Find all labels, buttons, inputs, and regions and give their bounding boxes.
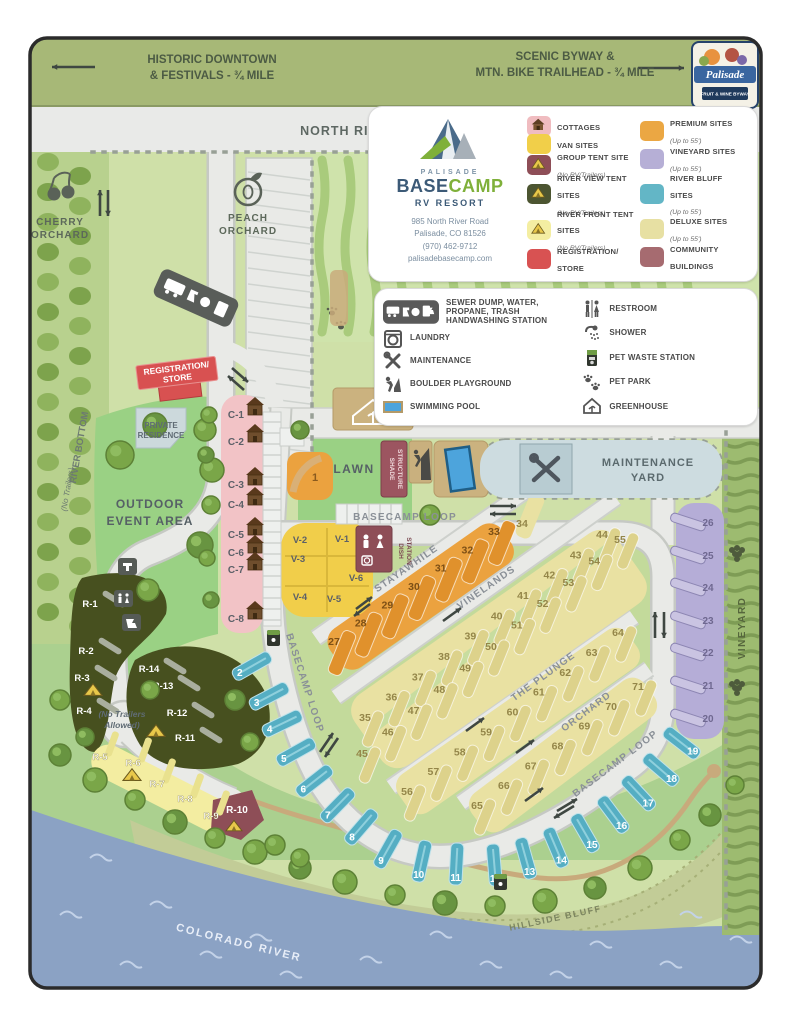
legend-amenity-item: SHOWER [582, 324, 747, 344]
tree [50, 690, 70, 710]
pet-waste-icon [582, 348, 602, 368]
tree [699, 804, 721, 826]
tree [49, 744, 71, 766]
site-V-4: V-4 [293, 592, 308, 603]
legend-swatch [527, 116, 551, 136]
cabin-door [253, 436, 257, 442]
tent-icon [530, 186, 548, 202]
tree-highlight [87, 772, 97, 782]
tree [333, 870, 357, 894]
tree-highlight [632, 860, 642, 870]
tree-highlight [673, 833, 681, 841]
legend-item: COMMUNITY BUILDINGS [640, 243, 747, 271]
legend-swatch [527, 220, 551, 240]
site-C-4: C-4 [228, 500, 245, 511]
site-4: 4 [267, 725, 273, 736]
brand-name: BASECAMP [379, 176, 521, 197]
bush [37, 453, 59, 471]
site-1: 1 [312, 472, 318, 484]
tree-highlight [337, 874, 347, 884]
site-27: 27 [328, 636, 340, 648]
legend-amenity-item: BOULDER PLAYGROUND [383, 374, 572, 394]
tree-highlight [79, 731, 86, 738]
site-C-7: C-7 [228, 565, 245, 576]
dump-station-icons [383, 300, 439, 324]
brand-palisade: PALISADE [379, 169, 521, 176]
site-R-2: R-2 [78, 646, 93, 657]
water-spigot-icon [118, 558, 137, 575]
site-V-3: V-3 [291, 554, 305, 565]
bush [69, 527, 91, 545]
site-R-9: R-9 [203, 811, 218, 822]
tree-highlight [228, 693, 236, 701]
banner-left-line1: HISTORIC DOWNTOWN [147, 54, 276, 66]
site-43: 43 [570, 549, 582, 561]
site-23: 23 [702, 616, 714, 627]
basecamp-logo-icon [418, 117, 482, 163]
handwash-icon-map [122, 614, 141, 631]
grape [734, 690, 740, 696]
restroom-icon [582, 299, 602, 319]
site-3: 3 [254, 698, 260, 709]
bush [37, 603, 59, 621]
event-area-label1: OUTDOOR [116, 497, 184, 511]
tree-highlight [244, 736, 251, 743]
site-41: 41 [517, 590, 529, 602]
bush [69, 377, 91, 395]
site-15: 15 [586, 840, 598, 851]
site-34: 34 [516, 518, 528, 530]
tree-highlight [488, 899, 496, 907]
bush [69, 257, 91, 275]
site-V-6: V-6 [349, 573, 363, 584]
legend-swatch [527, 155, 551, 175]
site-21: 21 [702, 681, 714, 692]
site-17: 17 [643, 798, 655, 809]
tree [205, 828, 225, 848]
vineyard-label: VINEYARD [737, 597, 748, 660]
website: palisadebasecamp.com [379, 253, 521, 265]
tree [628, 856, 652, 880]
site-19: 19 [687, 747, 699, 758]
bush [69, 347, 91, 365]
banner-left-line2: & FESTIVALS - ¾ MILE [150, 70, 275, 82]
tree-highlight [200, 449, 206, 455]
tree-highlight [205, 594, 211, 600]
site-R-1: R-1 [82, 599, 98, 610]
legend-amenity-item: PET WASTE STATION [582, 348, 747, 368]
tree-highlight [191, 536, 201, 546]
site-C-2: C-2 [228, 437, 245, 448]
tree-highlight [587, 880, 596, 889]
legend-item-label: PREMIUM SITES [670, 119, 733, 128]
legend-amenity-label: PET WASTE STATION [609, 354, 695, 363]
swimming-pool [445, 447, 475, 492]
legend-swatch [640, 121, 664, 141]
site-C-6: C-6 [228, 548, 245, 559]
site-59: 59 [480, 726, 492, 738]
legend-amenities-panel: SEWER DUMP, WATER, PROPANE, TRASH HANDWA… [374, 288, 758, 426]
tree [198, 447, 214, 463]
legend-amenity-icon [582, 397, 602, 417]
site-65: 65 [471, 800, 483, 812]
tree-highlight [208, 831, 216, 839]
bush [37, 303, 59, 321]
site-22: 22 [702, 648, 714, 659]
tree [241, 733, 259, 751]
site-64: 64 [612, 627, 624, 639]
site-R-7: R-7 [149, 779, 164, 790]
tree-highlight [52, 747, 61, 756]
tree [533, 889, 557, 913]
event-area-label2: EVENT AREA [107, 514, 194, 528]
badge-sub: FRUIT & WINE BYWAY [700, 92, 749, 97]
dish-station-building [356, 526, 392, 572]
site-46: 46 [382, 727, 394, 739]
legend-swatch [640, 247, 664, 267]
tree-highlight [437, 895, 447, 905]
bush [37, 423, 59, 441]
tent-icon [530, 222, 548, 238]
cherry-orchard-label1: CHERRY [36, 217, 84, 228]
legend-item: RIVER BLUFF SITES (Up to 55') [640, 173, 747, 215]
site-44: 44 [596, 529, 608, 541]
site-V-1: V-1 [335, 534, 350, 545]
tree-highlight [53, 693, 61, 701]
bush [69, 167, 91, 185]
no-trailers-allowed2: Allowed) [103, 720, 140, 730]
no-trailers-allowed1: (No Trailers [98, 709, 145, 719]
site-39: 39 [464, 631, 476, 643]
tree-highlight [140, 582, 149, 591]
phone: (970) 462-9712 [379, 241, 521, 253]
tree [125, 790, 145, 810]
legend-item: COTTAGES [527, 117, 634, 135]
site-45: 45 [356, 748, 368, 760]
grape [734, 556, 740, 562]
bush [37, 363, 59, 381]
premium-site-1 [287, 452, 333, 500]
site-49: 49 [459, 662, 471, 674]
dish-station-label2: STATION [405, 537, 412, 565]
site-18: 18 [666, 774, 678, 785]
swimming-pool-icon [383, 397, 403, 417]
bush [37, 333, 59, 351]
site-58: 58 [454, 746, 466, 758]
tree [141, 681, 159, 699]
legend-amenity-icon [383, 329, 403, 349]
private-residence-label1: PRIVATE [144, 421, 178, 430]
tree [385, 885, 405, 905]
tree-highlight [268, 838, 276, 846]
legend-amenity-label: SHOWER [609, 329, 646, 338]
legend-amenity-label: LAUNDRY [410, 334, 450, 343]
cabin-door [253, 564, 257, 570]
legend-swatch [640, 184, 664, 204]
cabin-door [253, 613, 257, 619]
trail-end [707, 764, 721, 778]
banner-right-line1: SCENIC BYWAY & [515, 51, 614, 63]
tree [291, 421, 309, 439]
address-line1: 985 North River Road [379, 216, 521, 228]
cabin-door [253, 499, 257, 505]
shower-icon [582, 324, 602, 344]
cabin-icon [530, 118, 548, 134]
tree [670, 830, 690, 850]
legend-amenity-label: RESTROOM [609, 305, 657, 314]
tree [726, 776, 744, 794]
site-55: 55 [614, 534, 626, 546]
legend-amenity-item: LAUNDRY [383, 329, 572, 349]
address-line2: Palisade, CO 81526 [379, 228, 521, 240]
legend-amenity-item: SEWER DUMP, WATER, PROPANE, TRASH HANDWA… [383, 299, 572, 326]
tree-highlight [205, 499, 212, 506]
bush [69, 317, 91, 335]
site-C-1: C-1 [228, 410, 245, 421]
cabin-door [253, 409, 257, 415]
bush [37, 573, 59, 591]
tree-highlight [144, 684, 151, 691]
site-51: 51 [511, 620, 523, 632]
tree [83, 768, 107, 792]
site-R-4: R-4 [76, 706, 92, 717]
legend-swatch [640, 219, 664, 239]
site-33: 33 [488, 526, 500, 538]
site-71: 71 [632, 681, 644, 693]
legend-swatch [527, 184, 551, 204]
tree [76, 728, 94, 746]
cherry-orchard-label2: ORCHARD [31, 230, 89, 241]
bush [37, 153, 59, 171]
shade-label1: SHADE [388, 458, 395, 481]
site-26: 26 [702, 518, 714, 529]
dish-station-label1: DISH [397, 543, 404, 559]
site-30: 30 [408, 581, 420, 593]
tree-highlight [197, 422, 206, 431]
tree-highlight [388, 888, 396, 896]
brand-base: BASE [396, 176, 448, 196]
shade-label2: STRUCTURE [396, 449, 403, 490]
tree [202, 496, 220, 514]
tree [201, 407, 217, 423]
pet-waste-icon-map2 [494, 874, 507, 890]
legend-amenity-label: MAINTENANCE [410, 357, 471, 366]
peach-orchard-label2: ORCHARD [219, 226, 277, 237]
legend-swatch [527, 134, 551, 154]
bush [37, 543, 59, 561]
site-38: 38 [438, 651, 450, 663]
legend-item-label: RIVER BLUFF SITES [670, 174, 722, 200]
site-14: 14 [556, 856, 568, 867]
site-5: 5 [281, 754, 287, 765]
site-50: 50 [485, 641, 497, 653]
tree [584, 877, 606, 899]
site-42: 42 [543, 570, 555, 582]
site-R-6: R-6 [125, 758, 140, 769]
pet-park-path [330, 270, 348, 326]
greenhouse-icon [582, 397, 602, 417]
legend-item-label: COMMUNITY BUILDINGS [670, 245, 719, 271]
site-37: 37 [412, 671, 424, 683]
site-67: 67 [525, 760, 537, 772]
tree-highlight [167, 814, 177, 824]
site-20: 20 [702, 714, 714, 725]
legend-item-label: RIVER FRONT TENT SITES [557, 210, 634, 236]
legend-amenity-label: SEWER DUMP, WATER, PROPANE, TRASH HANDWA… [446, 299, 572, 326]
tent-icon [530, 157, 548, 173]
legend-item-label: COTTAGES [557, 123, 600, 132]
legend-amenity-icon [582, 299, 602, 319]
tree-highlight [110, 445, 121, 456]
legend-item: PREMIUM SITES (Up to 55') [640, 117, 747, 145]
site-40: 40 [491, 610, 503, 622]
basecamp-loop-top-label: BASECAMP LOOP [353, 512, 457, 523]
legend-amenity-item: GREENHOUSE [582, 397, 747, 417]
site-C-8: C-8 [228, 614, 245, 625]
legend-swatch [527, 249, 551, 269]
laundry-icon [383, 329, 403, 349]
site-R-12: R-12 [167, 708, 188, 719]
legend-amenities-right-column: RESTROOM SHOWER PET WASTE STATION PET PA… [582, 297, 747, 419]
legend-item-label: DELUXE SITES [670, 217, 727, 226]
legend-item-label: GROUP TENT SITE [557, 153, 629, 162]
maintenance-label1: MAINTENANCE [602, 457, 694, 469]
tree-highlight [702, 807, 711, 816]
legend-sites-panel: PALISADE BASECAMP RV RESORT 985 North Ri… [368, 106, 758, 282]
tree [106, 441, 134, 469]
peach-orchard-label1: PEACH [228, 213, 268, 224]
tree-highlight [128, 793, 136, 801]
legend-amenity-icon [582, 348, 602, 368]
site-7: 7 [325, 810, 331, 821]
site-9: 9 [378, 856, 384, 867]
site-57: 57 [428, 766, 440, 778]
tree-highlight [201, 552, 207, 558]
legend-swatch [640, 149, 664, 169]
tree [265, 835, 285, 855]
bush [69, 197, 91, 215]
site-56: 56 [401, 786, 413, 798]
legend-amenity-item: RESTROOM [582, 299, 747, 319]
banner-right-line2: MTN. BIKE TRAILHEAD - ¾ MILE [476, 67, 655, 79]
boulder-playground-icon [383, 374, 403, 394]
legend-amenity-icon [383, 397, 403, 417]
palisade-byway-badge: Palisade FRUIT & WINE BYWAY [692, 42, 758, 108]
legend-amenity-item: MAINTENANCE [383, 351, 572, 371]
bush [37, 243, 59, 261]
site-2: 2 [237, 668, 243, 679]
site-C-3: C-3 [228, 480, 245, 491]
maintenance-yard [480, 440, 722, 498]
site-V-2: V-2 [293, 535, 307, 546]
legend-amenity-label: SWIMMING POOL [410, 403, 480, 412]
site-28: 28 [355, 618, 367, 630]
bush [37, 483, 59, 501]
site-48: 48 [434, 684, 446, 696]
tree [291, 849, 309, 867]
site-R-10: R-10 [226, 805, 248, 816]
tree [199, 550, 215, 566]
site-13: 13 [524, 867, 536, 878]
site-R-11: R-11 [175, 733, 196, 744]
tree-highlight [729, 779, 736, 786]
brand-sub: RV RESORT [379, 198, 521, 208]
tree [203, 592, 219, 608]
site-52: 52 [537, 598, 549, 610]
bush [37, 273, 59, 291]
legend-amenities-left-column: SEWER DUMP, WATER, PROPANE, TRASH HANDWA… [383, 297, 572, 419]
site-6: 6 [300, 785, 306, 796]
legend-amenity-item: PET PARK [582, 373, 747, 393]
site-36: 36 [385, 692, 397, 704]
site-C-5: C-5 [228, 530, 245, 541]
pet-waste-icon-map [267, 630, 280, 646]
tree [433, 891, 457, 915]
bush [69, 557, 91, 575]
legend-amenity-label: BOULDER PLAYGROUND [410, 380, 512, 389]
bush [69, 287, 91, 305]
site-31: 31 [435, 563, 447, 575]
site-R-8: R-8 [177, 794, 192, 805]
legend-amenity-label: PET PARK [609, 378, 650, 387]
legend-item-label: RIVER VIEW TENT SITES [557, 174, 627, 200]
cabin-door [253, 479, 257, 485]
resort-brand: PALISADE BASECAMP RV RESORT 985 North Ri… [379, 115, 521, 273]
legend-item-label: VINEYARD SITES [670, 147, 735, 156]
legend-amenity-item: SWIMMING POOL [383, 397, 572, 417]
legend-item: REGISTRATION/ STORE [527, 247, 634, 271]
private-residence-label2: RESIDENCE [138, 431, 185, 440]
site-60: 60 [507, 707, 519, 719]
site-V-5: V-5 [327, 594, 342, 605]
site-8: 8 [349, 833, 355, 844]
legend-item-label: REGISTRATION/ STORE [557, 247, 619, 273]
badge-name: Palisade [706, 69, 745, 81]
site-R-3: R-3 [74, 673, 89, 684]
legend-amenity-icon [582, 373, 602, 393]
site-11: 11 [450, 873, 461, 884]
legend-amenity-icon [582, 324, 602, 344]
site-R-14: R-14 [139, 664, 160, 675]
site-10: 10 [413, 870, 425, 881]
tree-highlight [203, 409, 209, 415]
site-24: 24 [702, 583, 714, 594]
legend-amenity-label: GREENHOUSE [609, 403, 668, 412]
site-63: 63 [586, 647, 598, 659]
maintenance-label2: YARD [631, 472, 665, 484]
cabin-door [253, 529, 257, 535]
site-35: 35 [359, 712, 371, 724]
legend-sites-left-column: COTTAGES VAN SITES GROUP TENT SITE (No R… [527, 115, 634, 273]
tree [137, 579, 159, 601]
lawn-label: LAWN [333, 462, 374, 476]
bush [37, 513, 59, 531]
site-68: 68 [552, 741, 564, 753]
bush [37, 393, 59, 411]
resort-map-page: REGISTRATION/ STORE [0, 0, 791, 1024]
brand-camp: CAMP [449, 176, 504, 196]
site-16: 16 [616, 821, 628, 832]
site-53: 53 [563, 577, 575, 589]
site-47: 47 [408, 705, 420, 717]
maintenance-icon [383, 351, 403, 371]
tree [163, 810, 187, 834]
tree [225, 690, 245, 710]
legend-amenity-icon [383, 300, 439, 324]
bush [69, 497, 91, 515]
tree-highlight [294, 852, 301, 859]
legend-amenity-icon [383, 351, 403, 371]
